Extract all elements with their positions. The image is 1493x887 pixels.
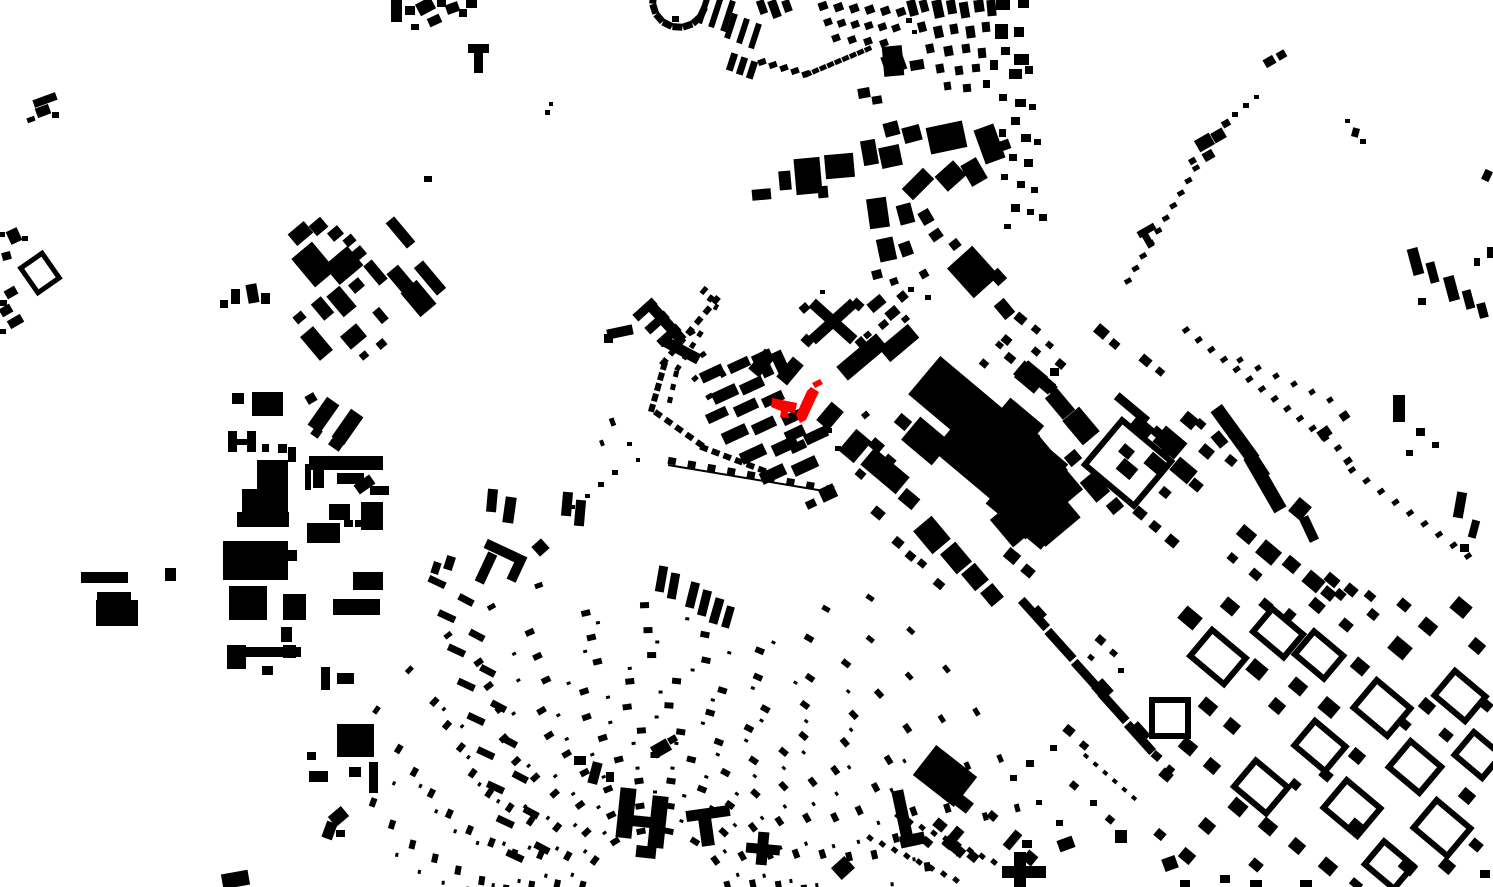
map-background	[0, 0, 1493, 887]
city-figure-ground-map	[0, 0, 1493, 887]
figure-ground-map-viewport	[0, 0, 1493, 887]
